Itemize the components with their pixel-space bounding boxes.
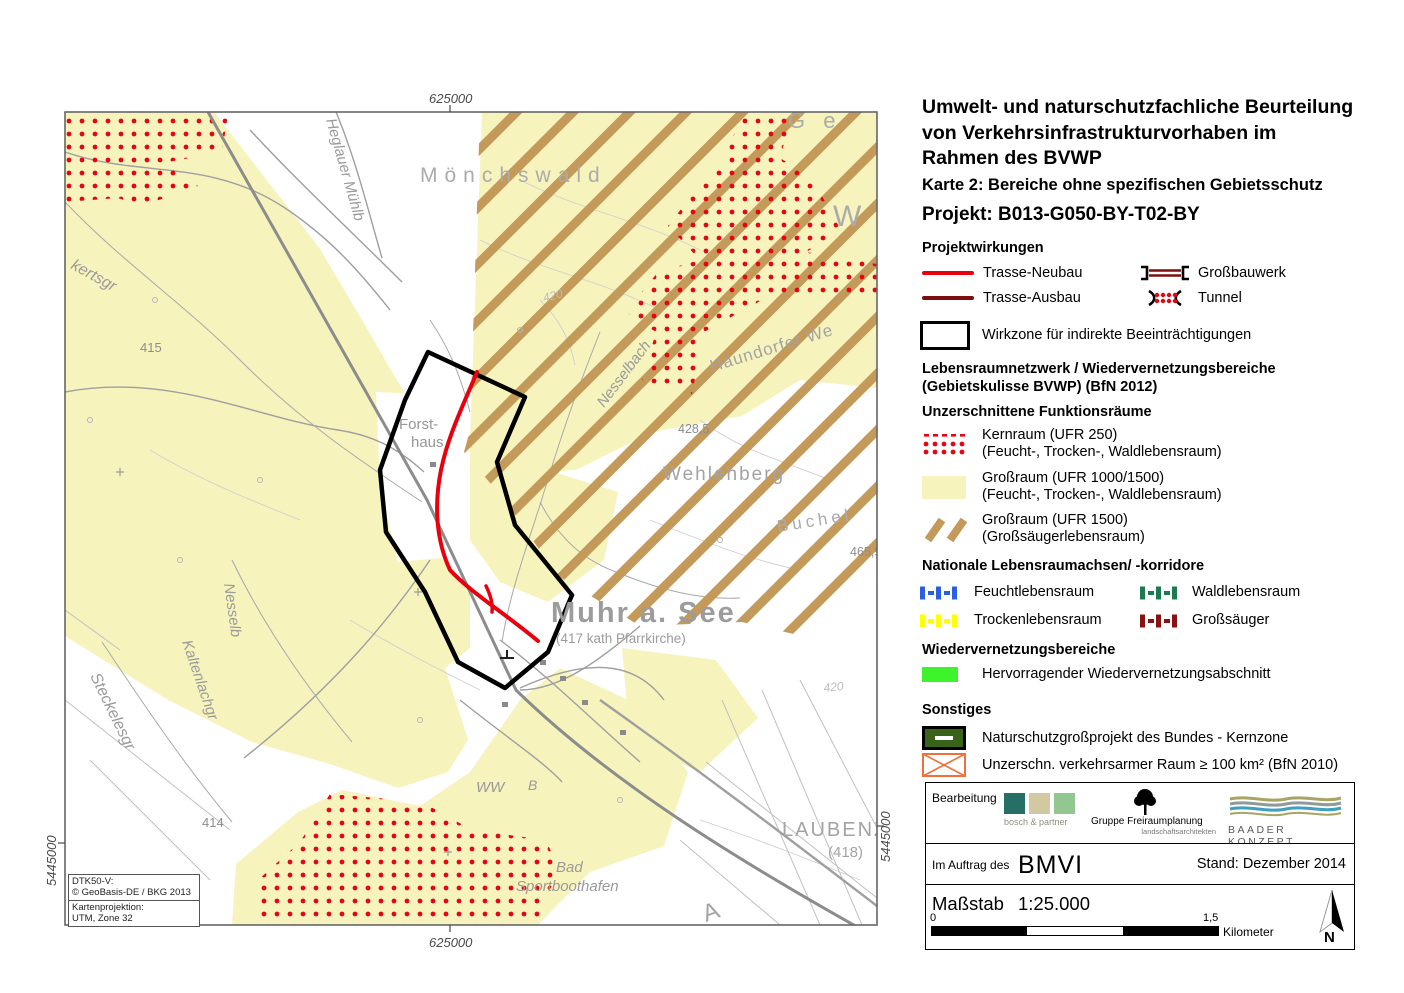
wirkzone-swatch — [920, 321, 970, 350]
tunnel-label: Tunnel — [1198, 290, 1242, 307]
trasse-neubau-label: Trasse-Neubau — [983, 265, 1082, 282]
kernraum-label-2: (Feucht-, Trocken-, Waldlebensraum) — [982, 444, 1222, 461]
bearbeitung-label: Bearbeitung — [932, 791, 997, 805]
heading-projektwirkungen: Projektwirkungen — [922, 239, 1044, 257]
bmvi-label: BMVI — [1018, 851, 1083, 880]
bosch-partner-label: bosch & partner — [1004, 817, 1075, 827]
heading-wiedervernetzung: Wiedervernetzungsbereiche — [922, 641, 1115, 659]
waldlebensraum-label: Waldlebensraum — [1192, 584, 1300, 601]
logo-baader-konzept: BAADER KONZEPT — [1228, 793, 1354, 848]
map-label-laubenz: LAUBENZ — [782, 819, 888, 841]
scale-seg-2 — [1027, 927, 1122, 935]
legend-hervorragend: Hervorragender Wiedervernetzungsabschnit… — [922, 666, 1271, 682]
massstab-label: Maßstab — [932, 893, 1004, 915]
map-label-w: W — [833, 200, 862, 233]
legend-kernraum: Kernraum (UFR 250) (Feucht-, Trocken-, W… — [922, 427, 1222, 461]
source-projection: UTM, Zone 32 — [72, 913, 196, 924]
page-title: Umwelt- und naturschutzfachliche Beurtei… — [922, 95, 1382, 172]
map-label-sportboothafen: Sportboothafen — [516, 878, 619, 895]
scale-tick-15: 1,5 — [1203, 912, 1218, 924]
map-label-b: B — [528, 777, 537, 793]
wirkzone-label: Wirkzone für indirekte Beeinträchtigunge… — [982, 327, 1251, 344]
kernraum-label-1: Kernraum (UFR 250) — [982, 427, 1222, 444]
legend-trasse-ausbau: Trasse-Ausbau — [922, 290, 1081, 306]
source-copyright: © GeoBasis-DE / BKG 2013 — [72, 887, 196, 898]
map-source-box: DTK50-V: © GeoBasis-DE / BKG 2013 Karten… — [68, 874, 200, 927]
source-product: DTK50-V: — [72, 876, 196, 887]
heading-sonstiges: Sonstiges — [922, 701, 991, 719]
grosssaeuger-swatch — [1140, 614, 1180, 628]
map-label-415: 415 — [140, 340, 162, 355]
logo-bosch-partner: bosch & partner — [1004, 793, 1075, 827]
grossraum-1500-swatch — [922, 516, 968, 542]
verkehrsarm-label: Unzerschn. verkehrsarmer Raum ≥ 100 km² … — [982, 757, 1338, 774]
heading-funktionsraeume: Unzerschnittene Funktionsräume — [922, 403, 1152, 421]
scale-unit: Kilometer — [1223, 925, 1274, 939]
hervorragend-swatch — [922, 667, 958, 682]
tree-icon — [1129, 787, 1163, 817]
grossbauwerk-icon — [1140, 264, 1190, 282]
gruppe-sublabel: landschaftsarchitekten — [1091, 827, 1216, 836]
hervorragend-label: Hervorragender Wiedervernetzungsabschnit… — [982, 666, 1271, 683]
trockenlebensraum-label: Trockenlebensraum — [974, 612, 1102, 629]
verkehrsarm-swatch — [922, 753, 966, 777]
auftrag-box: Im Auftrag des BMVI Stand: Dezember 2014 — [925, 843, 1355, 886]
kernraum-swatch — [922, 431, 968, 457]
legend-tunnel: Tunnel — [1140, 288, 1242, 308]
feuchtlebensraum-swatch — [920, 586, 960, 600]
map-label-forsthaus-1: Forst- — [399, 416, 438, 433]
massstab-ratio: 1:25.000 — [1018, 893, 1090, 915]
lebensraum-heading-1: Lebensraumnetzwerk / Wiedervernetzungsbe… — [922, 360, 1372, 378]
scale-seg-1 — [932, 927, 1027, 935]
stand-label: Stand: Dezember 2014 — [1197, 856, 1346, 872]
map-layers: Mönchswald G e W Heglauer Mühlb kertsgr … — [65, 108, 888, 938]
legend-grossbauwerk: Großbauwerk — [1140, 263, 1286, 283]
coord-bottom: 625000 — [429, 935, 473, 950]
heading-achsen: Nationale Lebensraumachsen/ -korridore — [922, 557, 1204, 575]
legend-trasse-neubau: Trasse-Neubau — [922, 265, 1082, 281]
legend-wirkzone: Wirkzone für indirekte Beeinträchtigunge… — [920, 320, 1251, 350]
kernraum-labels: Kernraum (UFR 250) (Feucht-, Trocken-, W… — [982, 427, 1222, 461]
coord-right: 5445000 — [878, 811, 893, 862]
grossraum-1500-labels: Großraum (UFR 1500) (Großsäugerlebensrau… — [982, 512, 1145, 546]
legend-grossraum-1500: Großraum (UFR 1500) (Großsäugerlebensrau… — [922, 512, 1145, 546]
map-label-forsthaus-2: haus — [411, 434, 444, 451]
grosssaeuger-label: Großsäuger — [1192, 612, 1269, 629]
gruppe-label: Gruppe Freiraumplanung — [1091, 816, 1216, 827]
map-label-muhr: Muhr a. See — [551, 597, 736, 629]
north-label: N — [1324, 929, 1335, 946]
scale-bar — [931, 926, 1219, 936]
feuchtlebensraum-label: Feuchtlebensraum — [974, 584, 1094, 601]
map-label-ww: WW — [476, 779, 506, 796]
map-sheet: { "header": { "title_line1": "Umwelt- un… — [0, 0, 1404, 993]
legend-naturschutz: Naturschutzgroßprojekt des Bundes - Kern… — [922, 726, 1288, 750]
map-label-418: (418) — [828, 844, 863, 861]
map-label-420b: 420 — [823, 679, 845, 695]
map-label-muhr-sub: (417 kath Pfarrkirche) — [556, 631, 686, 646]
title-line-3: Rahmen des BVWP — [922, 146, 1382, 172]
map-canvas: Mönchswald G e W Heglauer Mühlb kertsgr … — [0, 0, 905, 993]
logo-gruppe-freiraumplanung: Gruppe Freiraumplanung landschaftsarchit… — [1091, 787, 1216, 836]
legend-trockenlebensraum: Trockenlebensraum — [920, 612, 1102, 629]
legend-grosssaeuger: Großsäuger — [1140, 612, 1269, 629]
coord-left: 5445000 — [44, 835, 59, 886]
legend-feuchtlebensraum: Feuchtlebensraum — [920, 584, 1094, 601]
grossbauwerk-label: Großbauwerk — [1198, 265, 1286, 282]
bearbeitung-box: Bearbeitung bosch & partner Gruppe Freir… — [925, 782, 1355, 845]
title-line-2: von Verkehrsinfrastrukturvorhaben im — [922, 121, 1382, 147]
scale-tick-0: 0 — [930, 912, 936, 924]
auftrag-label: Im Auftrag des — [932, 858, 1009, 872]
project-id: Projekt: B013-G050-BY-T02-BY — [922, 204, 1200, 226]
waldlebensraum-swatch — [1140, 586, 1180, 600]
trasse-ausbau-label: Trasse-Ausbau — [983, 290, 1081, 307]
grossraum-1000-labels: Großraum (UFR 1000/1500) (Feucht-, Trock… — [982, 470, 1222, 504]
grossraum-1000-swatch — [922, 476, 966, 499]
bosch-square-green — [1054, 793, 1075, 814]
grossraum-1500-label-2: (Großsäugerlebensraum) — [982, 529, 1145, 546]
heading-lebensraumnetzwerk: Lebensraumnetzwerk / Wiedervernetzungsbe… — [922, 360, 1372, 396]
legend-verkehrsarm: Unzerschn. verkehrsarmer Raum ≥ 100 km² … — [922, 753, 1338, 777]
map-subtitle: Karte 2: Bereiche ohne spezifischen Gebi… — [922, 176, 1323, 195]
naturschutz-label: Naturschutzgroßprojekt des Bundes - Kern… — [982, 730, 1288, 747]
trasse-neubau-swatch — [922, 271, 974, 275]
map-label-414: 414 — [202, 815, 224, 830]
lebensraum-heading-2: (Gebietskulisse BVWP) (BfN 2012) — [922, 378, 1372, 396]
bosch-square-teal — [1004, 793, 1025, 814]
map-label-bad: Bad — [556, 859, 583, 876]
naturschutz-swatch — [922, 726, 966, 750]
grossraum-1500-label-1: Großraum (UFR 1500) — [982, 512, 1145, 529]
coord-top: 625000 — [429, 91, 473, 106]
map-label-wehlenberg: Wehlenberg — [663, 464, 785, 485]
scale-seg-3 — [1123, 927, 1218, 935]
grossraum-1000-label-1: Großraum (UFR 1000/1500) — [982, 470, 1222, 487]
massstab-box: Maßstab 1:25.000 0 1,5 Kilometer N — [925, 884, 1355, 950]
trockenlebensraum-swatch — [920, 614, 960, 628]
title-line-1: Umwelt- und naturschutzfachliche Beurtei… — [922, 95, 1382, 121]
tunnel-icon — [1140, 289, 1190, 307]
grossraum-1000-label-2: (Feucht-, Trocken-, Waldlebensraum) — [982, 487, 1222, 504]
trasse-ausbau-swatch — [922, 296, 974, 300]
bosch-square-tan — [1029, 793, 1050, 814]
map-label-4285: 428,5 — [678, 422, 709, 436]
legend-waldlebensraum: Waldlebensraum — [1140, 584, 1300, 601]
legend-grossraum-1000: Großraum (UFR 1000/1500) (Feucht-, Trock… — [922, 470, 1222, 504]
source-projection-label: Kartenprojektion: — [72, 902, 196, 913]
baader-waves-icon — [1228, 793, 1343, 817]
map-label-moenchswald: Mönchswald — [420, 164, 607, 187]
